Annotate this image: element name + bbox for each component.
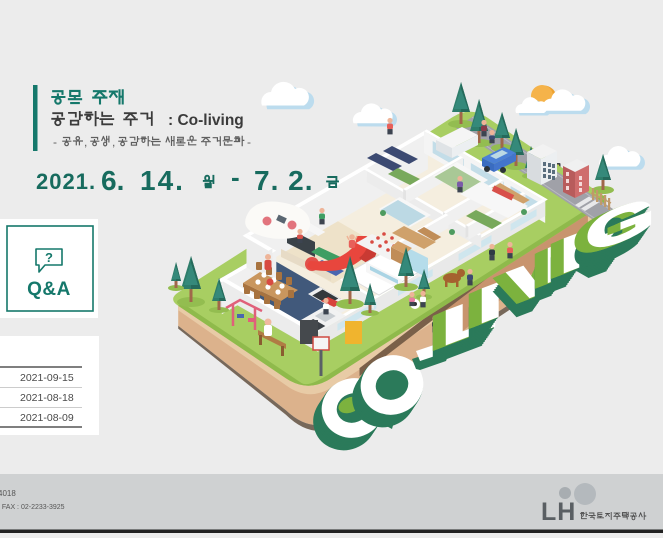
svg-text:Q&A: Q&A bbox=[27, 279, 71, 300]
svg-text:: Co-living: : Co-living bbox=[168, 112, 244, 129]
svg-text:/ FAX : 02-2233-3925: / FAX : 02-2233-3925 bbox=[0, 504, 65, 511]
svg-text:2021.: 2021. bbox=[36, 169, 96, 194]
svg-text:-: - bbox=[53, 135, 57, 149]
svg-text:LH: LH bbox=[541, 498, 576, 526]
svg-text:2021-08-09: 2021-08-09 bbox=[20, 412, 74, 424]
svg-text:2021-08-18: 2021-08-18 bbox=[20, 392, 74, 404]
svg-text:-: - bbox=[231, 162, 240, 192]
svg-text:7. 2.: 7. 2. bbox=[254, 165, 313, 196]
svg-text:4018: 4018 bbox=[0, 489, 16, 498]
svg-text:14.: 14. bbox=[140, 165, 185, 196]
svg-text:,: , bbox=[112, 135, 115, 149]
svg-text:2021-09-15: 2021-09-15 bbox=[20, 372, 74, 384]
svg-text:-: - bbox=[247, 135, 251, 149]
svg-text:?: ? bbox=[45, 250, 53, 265]
svg-text:6.: 6. bbox=[101, 165, 124, 196]
svg-text:,: , bbox=[84, 135, 87, 149]
